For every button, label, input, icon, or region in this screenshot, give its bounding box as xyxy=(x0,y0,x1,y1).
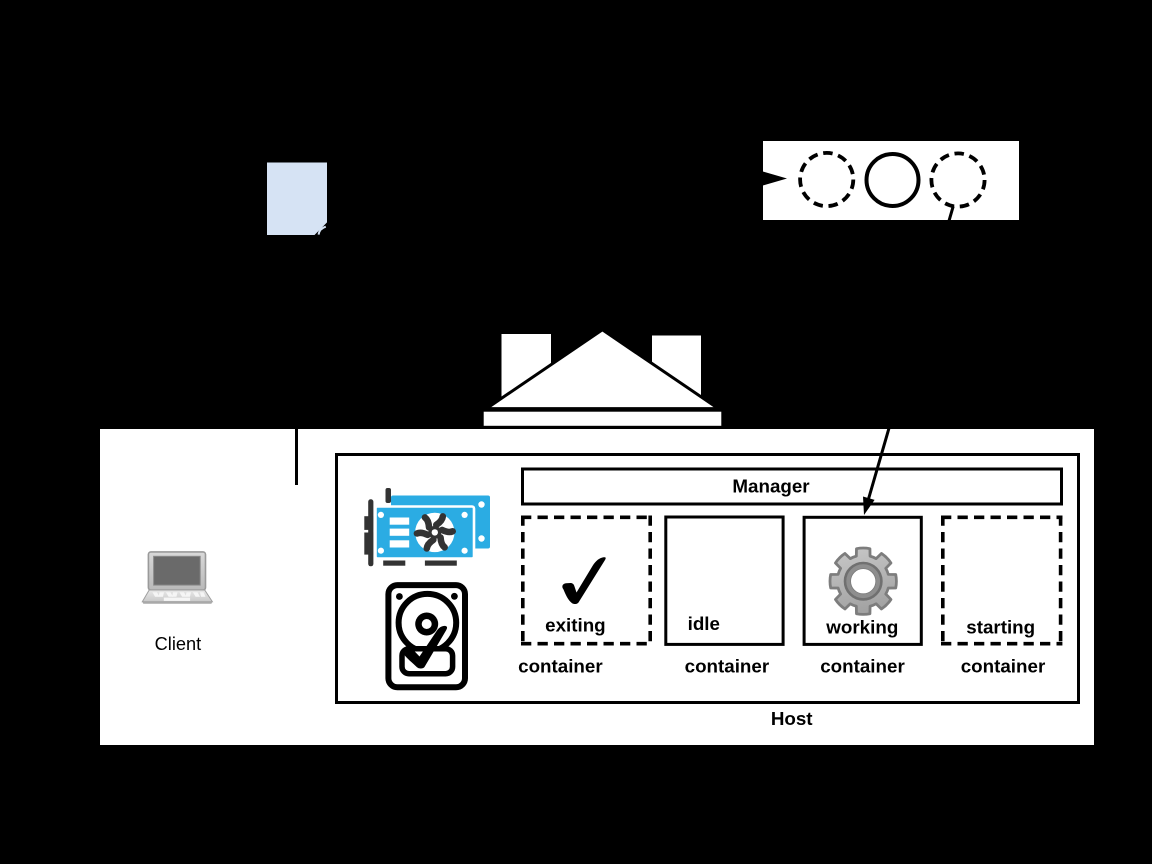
svg-text:idle: idle xyxy=(688,613,720,634)
svg-text:container: container xyxy=(820,656,905,677)
svg-text:Client: Client xyxy=(155,634,202,654)
svg-text:container: container xyxy=(961,656,1046,677)
svg-text:Host: Host xyxy=(771,708,813,729)
svg-text:container: container xyxy=(685,656,770,677)
svg-text:Manager: Manager xyxy=(732,476,810,497)
svg-text:exiting: exiting xyxy=(545,614,606,635)
svg-text:container: container xyxy=(518,656,603,677)
svg-text:starting: starting xyxy=(966,617,1035,638)
svg-text:working: working xyxy=(825,617,898,638)
